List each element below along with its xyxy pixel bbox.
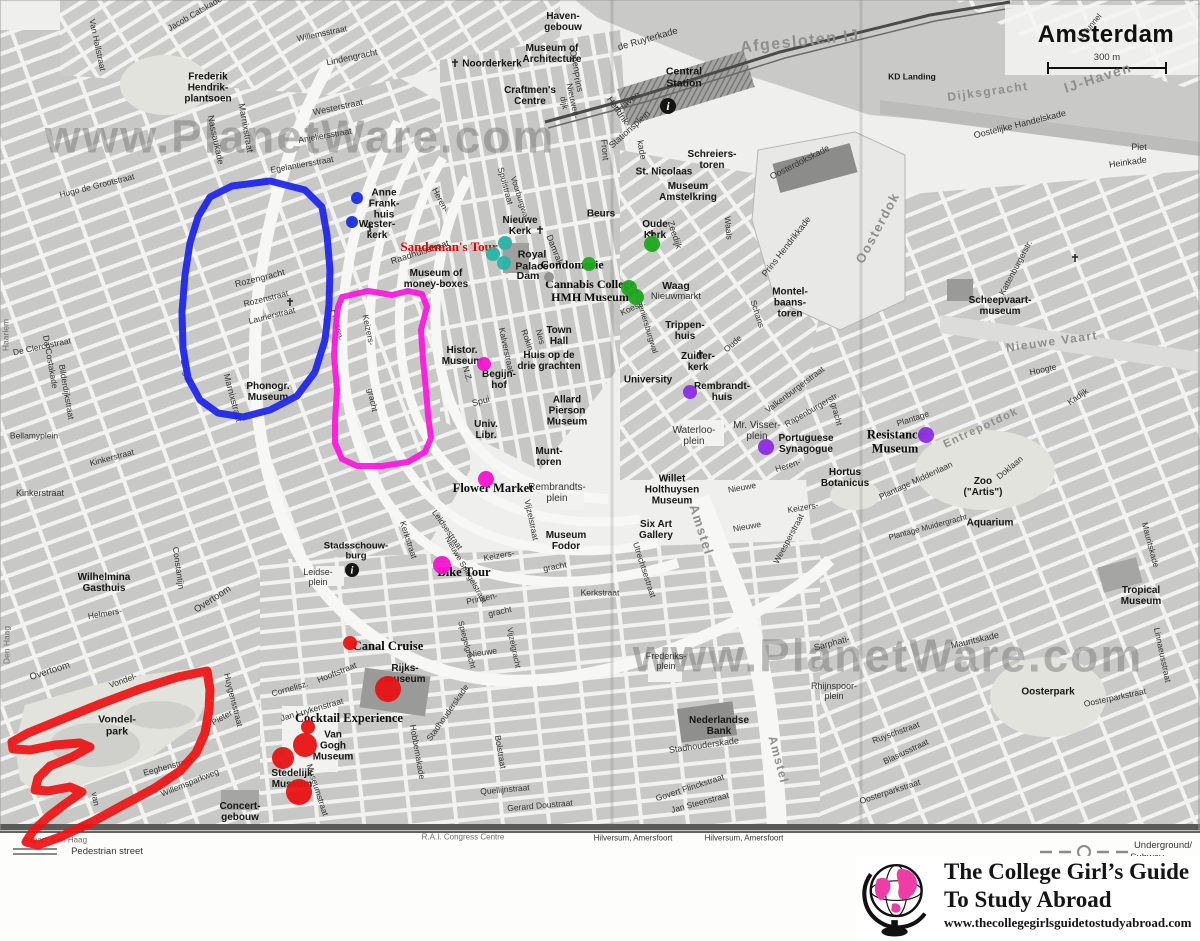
map-label: gracht [365, 387, 379, 412]
branding-url: www.thecollegegirlsguidetostudyabroad.co… [944, 915, 1191, 931]
map-label: Keizers- [483, 549, 515, 564]
map-label: Hilversum, Amersfoort [594, 835, 673, 844]
map-label: Gerard Doustraat [507, 798, 573, 813]
map-label: Vijzelstraat [522, 499, 540, 541]
map-label: Museum Amstelkring [659, 181, 717, 203]
map-label: Amstel [765, 735, 790, 786]
map-label: Nieuwen- dijk [555, 82, 581, 121]
map-label: Histor. Museum [442, 345, 483, 367]
map-label: Waag [662, 281, 690, 293]
map-label: Marnixstraat [221, 373, 243, 423]
map-label: gracht [828, 401, 843, 426]
map-label: Linnaeusstraat [1152, 627, 1173, 683]
map-label: IJ-Tunnel [1076, 13, 1104, 44]
dot-cannabis-college [621, 280, 637, 296]
map-label: de Ruyterkade [617, 26, 679, 53]
guide-label-sandemans-tour: Sandeman's Tour [400, 240, 497, 254]
map-label: Stadsschouw- burg [324, 542, 388, 563]
map-label: Plantage Middenlaan [878, 460, 954, 502]
map-label: Rembrandts- plein [528, 482, 586, 504]
map-label: Rozengracht [234, 268, 286, 290]
map-label: Aquarium [967, 518, 1014, 529]
map-label: Utrechtsestraat [631, 541, 658, 599]
info-icon: i [660, 98, 676, 114]
map-label: Wilhelmina Gasthuis [78, 572, 131, 594]
map-label: Oosterdokskade [769, 144, 832, 183]
guide-label-resistance-museum: Resistance Museum [867, 428, 923, 456]
map-label: Kadijk [1066, 387, 1090, 408]
watermark: www.PlanetWare.com [633, 631, 1144, 682]
railway [0, 2, 1200, 832]
watermark: www.PlanetWare.com [45, 112, 556, 163]
dot-canal-cruise [343, 636, 357, 650]
map-label: Rozenstraat [243, 289, 290, 309]
map-label: Willemsstraat [296, 24, 348, 44]
guide-label-flower-market: Flower Market [453, 482, 534, 496]
map-label: Nieuwe [468, 646, 497, 659]
map-label: Central Station [666, 66, 702, 89]
map-label: Oosterparkstraat [858, 778, 921, 806]
map-label: Entrepotdok [942, 405, 1021, 450]
map-label: Oude [722, 334, 744, 355]
map-label: Valkenburgerstraat [764, 365, 826, 415]
map-label: Leidsestraat [430, 508, 464, 551]
map-label: Concert- gebouw [219, 801, 260, 823]
map-labels-layer: Amsterdam300 mwww.PlanetWare.comwww.Plan… [0, 0, 1200, 941]
map-label: gracht [487, 605, 512, 619]
map-label: Doklaan [995, 454, 1025, 481]
map-label: Hugo de Grootstraat [59, 172, 136, 200]
map-label: Oostelijke Handelskade [973, 109, 1067, 141]
map-label: Spui [471, 395, 491, 409]
map-label: Zoo ("Artis") [964, 476, 1003, 498]
canal-belt-outline [334, 291, 431, 466]
map-label: Kloveniersburgwal [631, 289, 659, 354]
dot-hmh-museum [628, 289, 644, 305]
map-label: Mr. Visser- plein [733, 420, 781, 442]
map-label: Waals [722, 216, 733, 240]
map-label: Nassaukade [205, 114, 225, 165]
map-label: Bilderdijkstraat [57, 364, 76, 421]
map-label: Amstel [686, 503, 716, 557]
map-label: Jacob Catskade [166, 0, 223, 33]
dot-westerkerk [346, 216, 358, 228]
map-label: Haven- gebouw [544, 11, 582, 33]
map-label: Jan Luykenstraat [280, 697, 345, 724]
scale-label: 300 m [1094, 53, 1120, 63]
map-label: Nieuwe Kerk [502, 215, 537, 237]
map-label: Kinkerstraat [16, 489, 64, 499]
map-label: Van Gogh Museum [313, 730, 354, 763]
map-label: Rapenburgerstr. [783, 391, 840, 430]
map-label: Frederiks- plein [646, 652, 687, 672]
map-label: Marnixstraat [236, 103, 254, 153]
map-label: Univ. Libr. [474, 419, 498, 441]
landmark-buildings [221, 51, 1143, 810]
map-label: Town Hall [546, 325, 571, 347]
map-label: Kinkerstraat [89, 448, 135, 469]
map-label: Rhijnspoor- plein [811, 682, 857, 702]
map-label: Zuider- kerk [681, 351, 715, 373]
dot-begijnhof [477, 357, 491, 371]
map-label: Prins [570, 71, 585, 93]
scale-bar [1048, 62, 1166, 74]
map-label: gracht [543, 560, 568, 573]
map-label: Haarlem [1, 319, 10, 351]
legend-pedestrian-symbol [13, 849, 57, 854]
map-label: Nieuwe Spiegelstraat [442, 535, 487, 605]
map-label: kade [634, 140, 647, 161]
legend-underground: Underground/ [1134, 841, 1192, 851]
map-land [0, 0, 1200, 832]
fold-lines [612, 0, 861, 832]
dot-teal-1 [498, 236, 512, 250]
guide-label-cocktail-experience: Cocktail Experience [295, 712, 403, 726]
map-label: Piet [1131, 143, 1147, 153]
map-label: Oosterparkstraat [1083, 687, 1147, 709]
map-label: Plantage Muidergracht [888, 513, 968, 542]
branding-footer: The College Girl’s Guide To Study Abroad… [856, 856, 1200, 941]
map-label: Bolstraat [492, 735, 507, 770]
title-backdrop [1005, 5, 1200, 75]
map-label: Sarphati- [813, 634, 851, 653]
map-label: Heinkade [1108, 155, 1147, 170]
map-label: Haven [616, 90, 643, 114]
map-label: Royal Palace [515, 249, 548, 272]
church-cross-icon [697, 350, 703, 358]
map-label: Weesperstraat [772, 512, 806, 565]
map-label: KD Landing [888, 72, 936, 81]
map-label: Plantage [896, 409, 931, 428]
map-label: Westerstraat [312, 98, 364, 118]
map-label: Hortus Botanicus [821, 467, 869, 489]
map-label: De Clercqstraat [12, 336, 72, 357]
map-label: Airport, Den Haag [23, 837, 87, 846]
map-label: Nieuwmarkt [651, 292, 701, 302]
jordaan-outline [182, 181, 330, 417]
map-label: Raadhuisstraat [390, 239, 451, 267]
map-label: Spuistraat [496, 166, 515, 205]
map-label: Leidse- plein [303, 568, 333, 588]
map-label: Van Hallstraat [87, 18, 107, 72]
church-cross-icon [452, 59, 458, 67]
canals [255, 62, 830, 826]
dot-resistance-museum [918, 427, 934, 443]
map-label: Zeedijk [665, 220, 683, 251]
map-label: Egelantiersstraat [270, 155, 334, 175]
city-blocks [0, 0, 1200, 826]
church-cross-icon [287, 298, 293, 306]
map-label: Munt- toren [535, 446, 562, 468]
annotation-overlay [0, 0, 1200, 941]
map-label: Begijn- hof [482, 369, 516, 391]
branding-line-2: To Study Abroad [944, 886, 1191, 914]
map-label: Trippen- huis [665, 320, 704, 342]
map-label: Schans [748, 299, 766, 329]
map-label: IJ-Haven [1062, 60, 1134, 96]
map-label: Huygensstraat [222, 672, 244, 727]
map-label: Den Haag [2, 626, 11, 664]
map-label: Willet Holthuysen Museum [645, 474, 699, 507]
scanned-map-page: ii Amsterdam300 mwww.PlanetWare.comwww.P… [0, 0, 1200, 941]
map-label: Tropical Museum [1121, 585, 1162, 607]
map-label: Huis op de drie grachten [517, 350, 580, 372]
map-label: Stedelijk Museum [271, 768, 312, 790]
church-cross-icon [1072, 254, 1078, 262]
guide-label-cannabis-college: Cannabis College HMH Museum [545, 278, 635, 304]
map-label: Hooftstraat [316, 661, 358, 685]
map-label: Vijzelgracht [504, 627, 521, 669]
map-label: Museum Fodor [546, 530, 587, 552]
map-label: Spiegelgracht [455, 620, 476, 670]
map-label: Ruyschstraat [871, 720, 921, 746]
map-label: R.A.I. Congress Centre [422, 834, 505, 843]
map-label: Stationsplein [608, 109, 653, 151]
dot-rijksmuseum [375, 676, 401, 702]
map-label: Laurierstraat [248, 306, 297, 327]
dot-flower-market [478, 471, 494, 487]
map-label: Quellijnstraat [480, 783, 530, 797]
map-label: Rokin [519, 328, 535, 352]
map-label: Nederlandse Bank [689, 715, 749, 737]
map-label: Lindengracht [326, 48, 379, 68]
map-label: Six Art Gallery [639, 519, 673, 541]
dot-map-gray [544, 272, 554, 282]
map-label: Allard Pierson Museum [547, 395, 588, 428]
map-label: Jan Steenstraat [670, 791, 730, 815]
church-cross-icon [367, 224, 373, 232]
map-title: Amsterdam [1038, 22, 1175, 48]
map-label: St. Nicolaas [636, 167, 693, 178]
map-label: Dijksgracht [947, 80, 1030, 104]
map-label: Waterloo- plein [673, 425, 716, 447]
map-label: Nes [534, 328, 547, 345]
guide-label-canal-cruise: Canal Cruise [353, 640, 424, 654]
dot-condomerie [582, 257, 596, 271]
map-label: Voorburgwal [508, 175, 530, 220]
map-label: Singel- [178, 358, 194, 386]
map-label: Beurs [587, 209, 615, 220]
map-label: Kerkstraat [581, 588, 620, 597]
map-label: Museumstraat [304, 763, 330, 817]
svg-text:i: i [666, 99, 670, 113]
map-label: Overtoom [29, 661, 72, 684]
map-label: Overtoom [193, 584, 234, 615]
globe-logo-icon [856, 856, 938, 940]
map-label: Keizers- [360, 314, 376, 346]
map-label: Pieter [210, 708, 234, 727]
dot-bike-tour [433, 556, 451, 574]
map-label: Prins Hendrikkade [760, 215, 813, 279]
map-label: N.Z. [460, 365, 473, 383]
dot-stedelijk-museum [286, 779, 312, 805]
map-label: Heren- [430, 186, 450, 213]
church-cross-icon [649, 230, 655, 238]
map-label: Helmers- [87, 606, 123, 621]
map-label: Portuguese Synagogue [778, 433, 833, 455]
map-label: Hilversum, Amersfoort [705, 835, 784, 844]
map-label: Craftmen's Centre [504, 85, 556, 107]
map-label: Oosterpark [1021, 687, 1074, 698]
map-label: Constantijn [170, 546, 185, 589]
map-label: Govert Flinckstraat [655, 773, 726, 804]
dot-red-extra [272, 747, 294, 769]
map-label: Damrak [544, 234, 565, 267]
branding-line-1: The College Girl’s Guide [944, 858, 1191, 886]
map-label: Kattenburgerstr. [998, 239, 1035, 297]
parks [15, 55, 1106, 800]
map-label: Rembrandt- huis [694, 381, 750, 403]
map-label: Da Costakade [41, 335, 60, 390]
map-label: Hendrik- [604, 95, 632, 129]
church-cross-icon [537, 226, 543, 234]
map-label: Mauritskade [950, 631, 1000, 652]
map-label: Mauritskade [1139, 521, 1160, 568]
city-squares [282, 258, 724, 772]
map-label: Stadhouderskade [425, 683, 471, 743]
map-label: Nieuwe [727, 481, 757, 495]
map-label: Dam [517, 271, 540, 283]
map-label: Vondel- park [98, 714, 136, 737]
map-label: Afgesloten IJ [739, 27, 860, 57]
map-label: Frederik Hendrik- plantsoen [184, 72, 231, 105]
map-label: Eeghenstraat [142, 756, 193, 778]
info-icon: i [345, 563, 359, 577]
map-label: Prinsen- [466, 591, 499, 607]
map-label: Montel- baans- toren [772, 287, 808, 320]
guide-label-bike-tour: Bike Tour [437, 566, 490, 580]
dot-oude-kerk [644, 236, 660, 252]
map-label: Kalverstraat [497, 327, 516, 373]
map-label: Hobbemakade [408, 724, 427, 780]
map-label: Willemsparkweg [160, 767, 221, 799]
map-label: Phonogr. Museum [246, 381, 289, 403]
map-label: Oude Kerk [642, 219, 668, 241]
water [575, 0, 1200, 372]
guide-label-condomerie: Condomerie [540, 258, 603, 271]
legend-pedestrian-street: Pedestrian street [71, 847, 143, 857]
map-label: Schreiers- toren [688, 149, 737, 171]
map-label: Oosterdok [853, 190, 902, 266]
map-label: Keizers- [787, 501, 819, 516]
map-label: Museum of Architecture [523, 43, 582, 65]
map-label: Wester- kerk [359, 219, 396, 241]
map-label: Prinsen- [329, 309, 345, 342]
map-label: Nieuwe Vaart [1005, 329, 1099, 355]
map-label: Bellamyplein [10, 431, 58, 440]
map-label: Cornelisz. [271, 679, 310, 698]
base-map-canvas: ii [0, 0, 1200, 941]
map-label: Kerkstraat [398, 520, 419, 560]
dot-rembrandt-huis [683, 385, 697, 399]
map-label: Open [567, 49, 581, 73]
map-label: Koestr. [619, 298, 647, 318]
map-label: Vondel- [108, 672, 138, 691]
map-symbols: ii [287, 59, 1078, 577]
map-label: Blasiusstraat [882, 737, 930, 766]
map-label: Hoogte [1029, 363, 1058, 378]
dot-portuguese-synagogue [758, 439, 774, 455]
map-label: Front [598, 139, 610, 161]
map-label: Rijks- museum [384, 663, 425, 685]
map-label: Heren- [774, 458, 802, 475]
dot-teal-2 [486, 247, 500, 261]
map-label: Anjeliersstraat [298, 127, 353, 146]
dot-van-gogh-museum [293, 733, 317, 757]
map-label: Anne Frank- huis [369, 188, 400, 221]
map-label: Scheepvaart- museum [969, 295, 1032, 317]
map-label: Noorderkerk [462, 59, 521, 70]
svg-text:i: i [351, 566, 354, 577]
map-label: Nieuwe [732, 520, 762, 534]
dot-anne-frank-huis [351, 192, 363, 204]
map-label: University [624, 375, 672, 386]
map-label: Museum of money-boxes [404, 268, 468, 290]
map-label: Stadhouderskade [668, 736, 739, 756]
map-label: van [89, 791, 101, 806]
dot-cocktail-experience [301, 720, 315, 734]
vondelpark-outline [12, 671, 210, 845]
dot-teal-3 [497, 256, 511, 270]
